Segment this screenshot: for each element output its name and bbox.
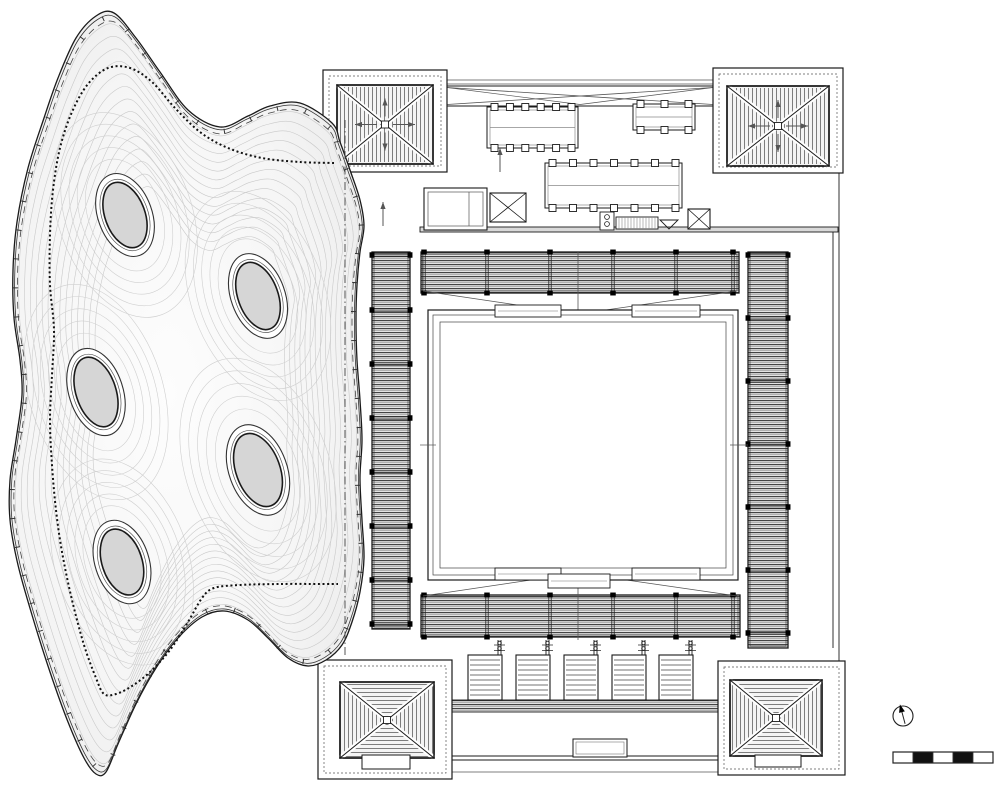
equipment-platform <box>487 104 578 152</box>
equipment-platform <box>545 160 682 212</box>
scale-bar-segment <box>933 752 953 763</box>
tower-top-right <box>713 68 843 173</box>
machine-room <box>424 188 487 230</box>
scale-bar-segment <box>893 752 913 763</box>
louver-strip-right <box>746 252 790 648</box>
scale-bar-segment <box>953 752 973 763</box>
tower-bottom-right <box>718 661 845 775</box>
equipment-platform <box>633 101 695 134</box>
grille-unit <box>616 217 658 229</box>
scale-bar <box>893 752 993 763</box>
roof-plan-drawing <box>0 0 1000 797</box>
roof-hatch-xbox <box>688 209 710 229</box>
louver-strip-bottom <box>421 593 740 639</box>
louver-strip-left <box>370 252 412 629</box>
roof-hatch-xbox <box>490 193 526 222</box>
vent-box <box>600 212 614 230</box>
scale-bar-segment <box>913 752 933 763</box>
tower-bottom-left <box>318 660 452 779</box>
roof-plan-sheet <box>0 0 1000 797</box>
louver-strip-top <box>421 250 739 295</box>
central-courtyard <box>420 305 748 588</box>
scale-bar-segment <box>973 752 993 763</box>
rooftop-truss <box>447 80 713 106</box>
